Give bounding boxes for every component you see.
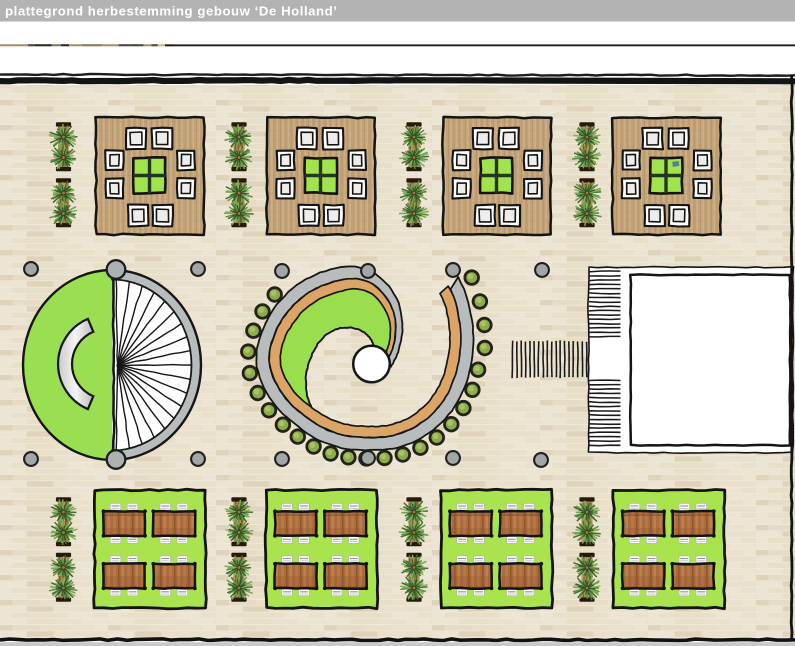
svg-text:plattegrond herbestemming gebo: plattegrond herbestemming gebouw ‘De Hol… [5,4,337,19]
